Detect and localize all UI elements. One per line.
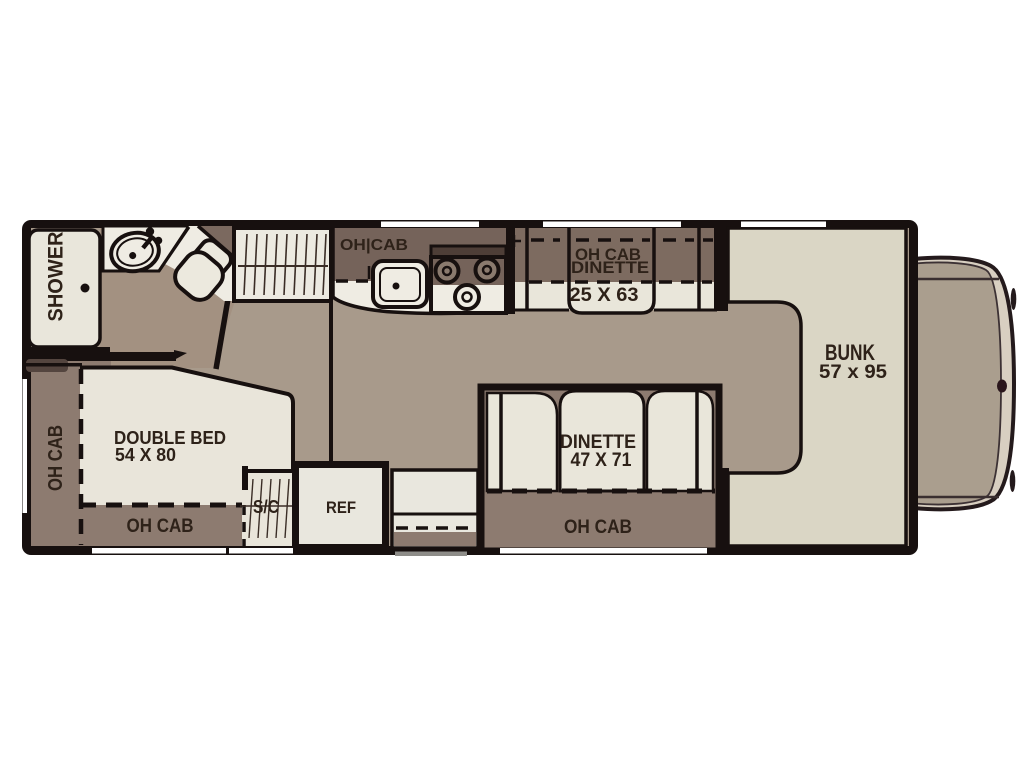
svg-text:DINETTE: DINETTE xyxy=(571,258,649,277)
svg-text:OH CAB: OH CAB xyxy=(127,516,194,537)
svg-text:57 x 95: 57 x 95 xyxy=(819,361,887,383)
svg-text:25 X 63: 25 X 63 xyxy=(570,284,639,306)
svg-text:REF: REF xyxy=(326,498,356,517)
svg-text:OH CAB: OH CAB xyxy=(564,517,632,538)
svg-text:54 X 80: 54 X 80 xyxy=(115,445,176,465)
svg-text:OH|CAB: OH|CAB xyxy=(340,237,408,254)
svg-text:SHOWER: SHOWER xyxy=(45,232,68,322)
svg-text:OH CAB: OH CAB xyxy=(45,425,67,491)
svg-text:47 X 71: 47 X 71 xyxy=(571,449,632,471)
svg-text:S/C: S/C xyxy=(253,497,279,517)
